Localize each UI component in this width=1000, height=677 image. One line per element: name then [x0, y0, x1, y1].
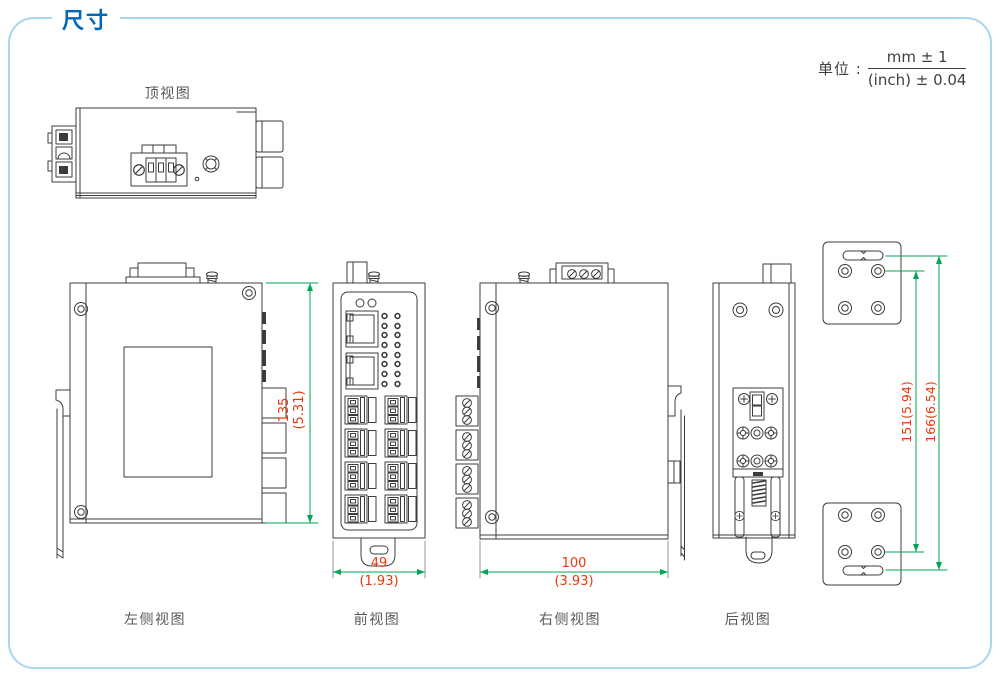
rj45-port: [346, 311, 378, 347]
rear-view-drawing: [713, 264, 795, 563]
front-width-inch: (1.93): [359, 574, 398, 589]
bracket-slot-span-text: 166(6.54): [923, 352, 939, 472]
top-view-drawing: [48, 108, 283, 198]
din-clip-slider: [735, 477, 780, 563]
top-left-connector: [48, 126, 76, 182]
ground-screw-side: [369, 272, 380, 283]
top-right-connectors: [256, 121, 283, 188]
front-width-mm: 49: [371, 556, 388, 571]
top-ground-screw: [203, 156, 219, 172]
front-terminal-blocks: [345, 396, 416, 523]
height-inch: (5.31): [292, 370, 307, 450]
power-led: [356, 299, 364, 307]
unit-inch: (inch) ± 0.04: [868, 69, 967, 89]
front-view-drawing: [333, 262, 425, 578]
wall-mount-bracket-bottom: [823, 503, 901, 585]
led-matrix: [382, 314, 400, 387]
wall-mount-bracket-top: [823, 242, 901, 324]
unit-note: 单位 : mm ± 1 (inch) ± 0.04: [818, 48, 966, 89]
screw: [486, 302, 499, 315]
depth-mm: 100: [562, 556, 587, 571]
ground-screw-side: [207, 272, 218, 283]
top-view-label: 顶视图: [145, 83, 192, 103]
din-rail-edge: [668, 386, 685, 560]
unit-mm: mm ± 1: [868, 48, 967, 69]
front-view-label: 前视图: [354, 609, 401, 629]
din-clip-top: [763, 264, 791, 283]
height-mm: 135: [277, 370, 292, 450]
depth-inch: (3.93): [554, 574, 593, 589]
din-clip-top: [347, 262, 367, 283]
screw: [243, 287, 256, 300]
top-pinhole: [195, 177, 199, 181]
height-dimension-text: 135 (5.31): [277, 370, 307, 450]
edge-marks: [262, 312, 266, 382]
page-title: 尺寸: [52, 3, 120, 35]
dimensions-page: 尺寸 单位 : mm ± 1 (inch) ± 0.04: [0, 0, 1000, 677]
power-led: [368, 299, 376, 307]
din-mount-bracket: [733, 388, 783, 477]
left-view-label: 左侧视图: [124, 609, 186, 629]
din-rail-edge: [56, 390, 70, 558]
left-top-connector: [126, 263, 200, 283]
top-terminal-block: [131, 145, 187, 186]
rear-view-label: 后视图: [725, 609, 772, 629]
right-side-view-drawing: [456, 263, 685, 578]
bracket-hole-span-text: 151(5.94): [899, 352, 915, 472]
unit-fraction: mm ± 1 (inch) ± 0.04: [868, 48, 967, 89]
right-view-label: 右侧视图: [539, 609, 601, 629]
ground-screw-side: [519, 272, 530, 283]
side-terminal-blocks: [456, 396, 478, 528]
right-top-terminal: [550, 263, 614, 283]
rear-top-screws: [733, 303, 783, 317]
rj45-port: [346, 353, 378, 389]
label-area: [124, 347, 212, 477]
spring: [753, 481, 765, 503]
unit-label: 单位 :: [818, 58, 862, 79]
screw: [486, 511, 499, 524]
